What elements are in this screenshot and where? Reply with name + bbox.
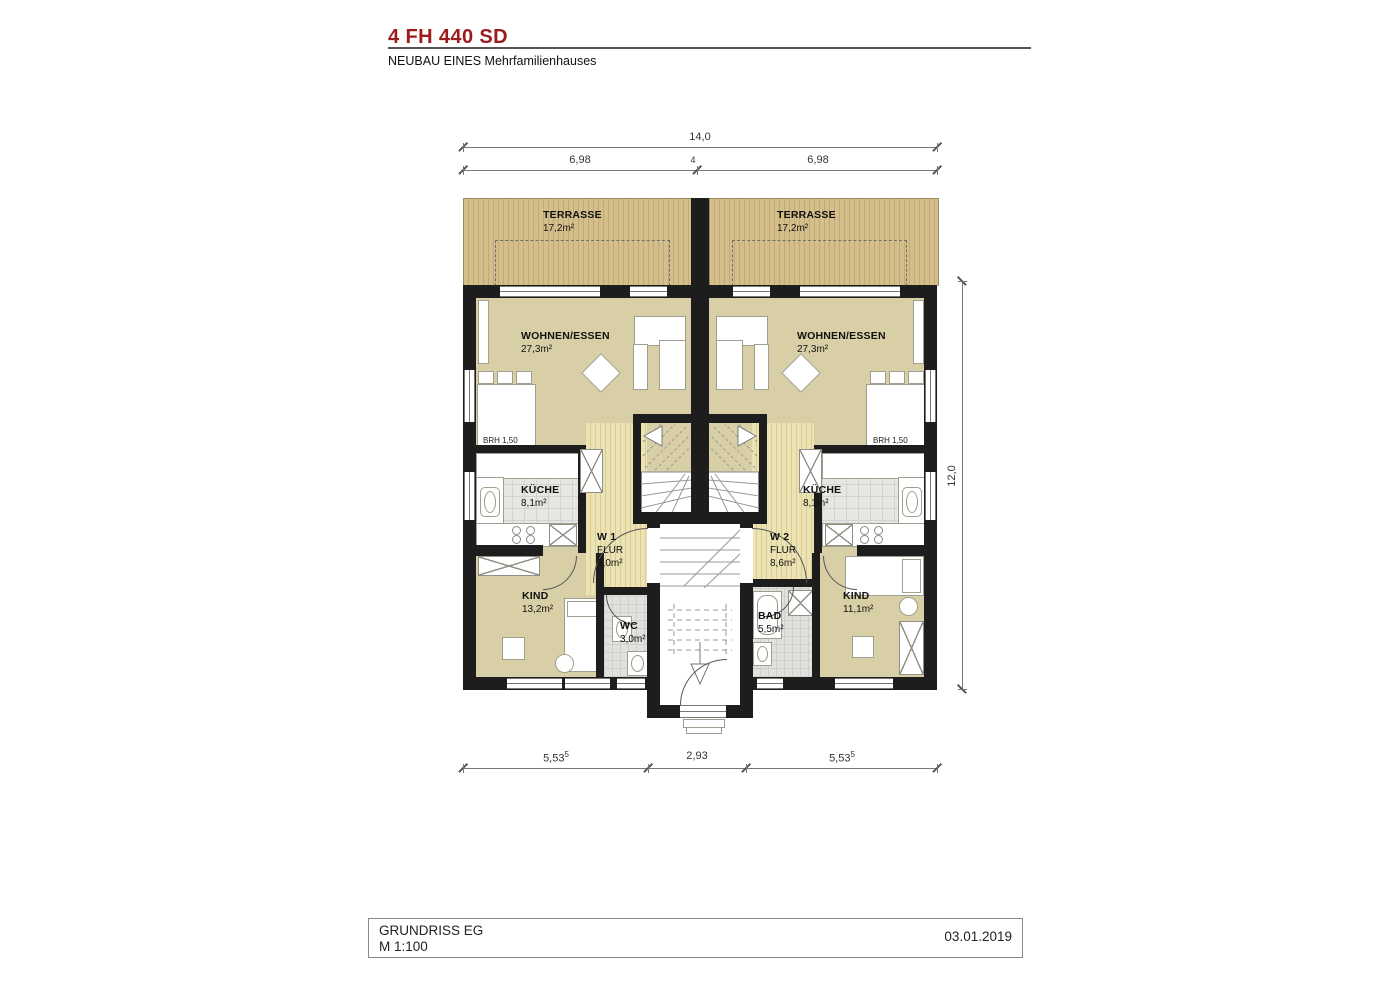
header-divider <box>388 47 1031 49</box>
brh-annotation-right: BRH 1,50 <box>873 436 908 445</box>
room-label-kind-right: KIND11,1m² <box>843 590 873 616</box>
dimension-line-bottom <box>463 768 937 769</box>
desk-kind-left <box>502 637 525 660</box>
window-kitchen-left <box>464 472 475 520</box>
kitchen-counter-right <box>822 453 926 479</box>
side-table-kind-right <box>852 636 874 658</box>
dimension-bottom-mid: 2,93 <box>667 750 727 762</box>
dimension-line-top-split <box>463 170 937 171</box>
front-door-opening <box>680 705 726 718</box>
fridge-left <box>549 524 577 546</box>
project-subtitle: NEUBAU EINES Mehrfamilienhauses <box>388 54 596 68</box>
room-label-kind-left: KIND13,2m² <box>522 590 553 616</box>
room-label-terrasse-left: TERRASSE17,2m² <box>543 209 602 235</box>
brh-annotation-left: BRH 1,50 <box>483 436 518 445</box>
sofa-right <box>716 340 743 390</box>
roof-overhang-right <box>732 240 907 286</box>
sofa-left-chaise <box>633 344 648 390</box>
dimension-line-right <box>962 281 963 689</box>
stair-up-arrow-icon <box>644 426 662 446</box>
apartment-stair-left <box>641 422 692 520</box>
chair <box>497 371 513 384</box>
wall-hall-top <box>633 512 767 524</box>
room-label-kueche-right: KÜCHE8,1m² <box>803 484 841 510</box>
room-label-terrasse-right: TERRASSE17,2m² <box>777 209 836 235</box>
window-kind-right <box>835 678 893 689</box>
shaft-left <box>580 449 603 493</box>
sofa-right-chaise <box>754 344 769 390</box>
room-label-wohnen-right: WOHNEN/ESSEN27,3m² <box>797 330 886 356</box>
dimension-top-right: 6,98 <box>788 154 848 166</box>
dimension-top-gap: 4 <box>685 155 701 165</box>
wall-stair-top <box>633 414 767 423</box>
drawing-date: 03.01.2019 <box>944 929 1012 944</box>
drawing-scale: M 1:100 <box>379 939 428 954</box>
window-dining-right <box>925 370 936 422</box>
wardrobe-kind-right <box>899 621 924 675</box>
chair <box>870 371 886 384</box>
window-top-right <box>733 286 770 297</box>
wall-party-central <box>691 198 709 524</box>
project-title: 4 FH 440 SD <box>388 26 508 49</box>
window-kitchen-right <box>925 472 936 520</box>
fridge-right <box>825 524 853 546</box>
room-label-wohnen-left: WOHNEN/ESSEN27,3m² <box>521 330 610 356</box>
stair-up-arrow-icon <box>738 426 756 446</box>
kitchen-sink-left <box>480 487 500 517</box>
stool-kind-left <box>555 654 574 673</box>
wall-bad-kind <box>812 553 820 677</box>
window-kind-left-1 <box>507 678 562 689</box>
terrace-door-left <box>500 286 600 297</box>
title-block: GRUNDRISS EG M 1:100 03.01.2019 <box>368 918 1023 958</box>
sideboard-right <box>913 300 924 364</box>
dimension-top-left: 6,98 <box>550 154 610 166</box>
wall-kind-top-right <box>857 545 937 556</box>
chair <box>516 371 532 384</box>
chair <box>889 371 905 384</box>
window-bad <box>757 678 783 689</box>
room-label-kueche-left: KÜCHE8,1m² <box>521 484 559 510</box>
stove-left <box>512 526 540 544</box>
chair <box>908 371 924 384</box>
window-wc <box>617 678 645 689</box>
wall-kitchen-living-right <box>822 445 937 453</box>
dimension-top-total: 14,0 <box>670 131 730 143</box>
drawing-title: GRUNDRISS EG <box>379 923 483 938</box>
wc-toilet <box>627 651 648 676</box>
roof-overhang-left <box>495 240 670 286</box>
wardrobe-kind-left <box>478 556 540 576</box>
window-kind-left-2 <box>565 678 610 689</box>
wall-entrance-left <box>647 705 680 718</box>
sofa-left <box>659 340 686 390</box>
wall-stair-right <box>759 423 767 520</box>
wall-kitchen-living-left <box>463 445 578 453</box>
wall-wc-top <box>596 587 648 595</box>
stove-right <box>860 526 888 544</box>
terrace-door-right <box>800 286 900 297</box>
wall-entrance-right <box>726 705 753 718</box>
sideboard-left <box>478 300 489 364</box>
dimension-bottom-right: 5,535 <box>812 750 872 765</box>
wall-kind-top-left <box>463 545 543 556</box>
window-top-left <box>630 286 667 297</box>
floor-plan-page: 4 FH 440 SD NEUBAU EINES Mehrfamilienhau… <box>0 0 1400 990</box>
entrance-step <box>686 727 722 734</box>
dimension-right-total: 12,0 <box>946 459 958 493</box>
wall-stair-left <box>633 423 641 520</box>
kitchen-sink-right <box>902 487 922 517</box>
kitchen-counter-left <box>476 453 580 479</box>
room-label-wc: WC3,0m² <box>620 620 646 646</box>
bath-basin <box>753 642 772 666</box>
window-dining-left <box>464 370 475 422</box>
dimension-bottom-left: 5,535 <box>526 750 586 765</box>
apartment-stair-right <box>708 422 759 520</box>
stool-kind-right <box>899 597 918 616</box>
door-opening-apartment-left <box>647 528 660 583</box>
room-label-bad: BAD5,5m² <box>758 610 784 636</box>
dimension-line-top-total <box>463 147 937 148</box>
room-label-flur-w1: W 1FLUR9,0m² <box>597 531 623 570</box>
room-label-flur-w2: W 2FLUR8,6m² <box>770 531 796 570</box>
chair <box>478 371 494 384</box>
